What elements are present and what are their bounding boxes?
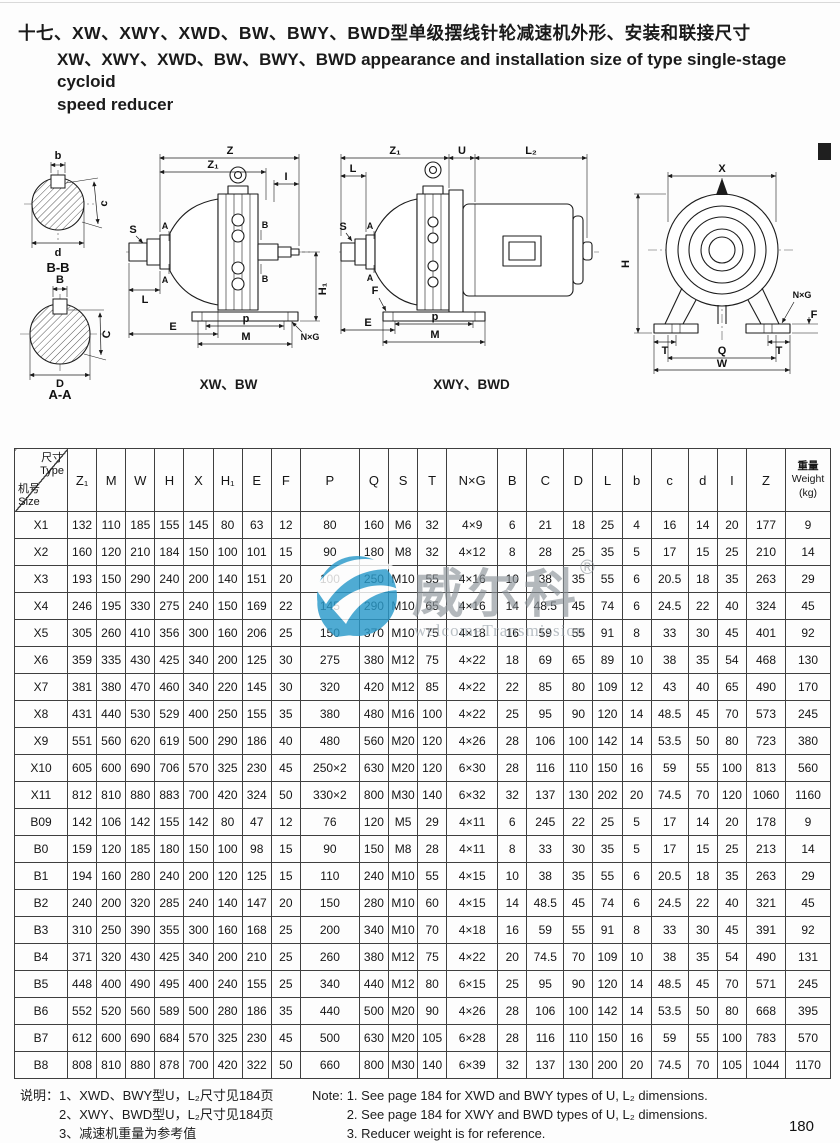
- dim-label-M: M: [430, 329, 439, 341]
- grease-fitting: [716, 178, 728, 195]
- dimension-value-cell: 22: [271, 593, 300, 620]
- dimension-value-cell: 110: [300, 863, 359, 890]
- dimension-value-cell: 32: [498, 782, 527, 809]
- dimension-value-cell: 880: [126, 1052, 155, 1079]
- dimension-value-cell: 54: [717, 647, 746, 674]
- dimension-value-cell: 690: [126, 755, 155, 782]
- dimension-value-cell: 38: [651, 944, 688, 971]
- dimension-value-cell: 100: [213, 539, 242, 566]
- dimension-value-cell: 25: [717, 539, 746, 566]
- dimension-value-cell: 45: [688, 701, 717, 728]
- dimension-value-cell: 120: [213, 863, 242, 890]
- dimension-value-cell: 150: [359, 836, 388, 863]
- column-header: N×G: [447, 449, 498, 512]
- dimension-value-cell: 359: [68, 647, 97, 674]
- dimension-value-cell: 59: [527, 917, 564, 944]
- dimension-value-cell: 880: [126, 782, 155, 809]
- dimension-value-cell: 178: [747, 809, 786, 836]
- technical-drawings: b c d B-B: [0, 142, 840, 444]
- dimension-value-cell: 230: [242, 755, 271, 782]
- row-type-cell: B3: [15, 917, 68, 944]
- xwy-bwd-view: Z₁ U L₂ L A A S F E: [339, 142, 604, 393]
- dimension-value-cell: 391: [747, 917, 786, 944]
- dimension-value-cell: 25: [717, 836, 746, 863]
- dimension-value-cell: 90: [418, 998, 447, 1025]
- dimension-value-cell: 69: [527, 647, 564, 674]
- dimension-value-cell: 43: [651, 674, 688, 701]
- dimension-value-cell: M12: [388, 647, 417, 674]
- row-type-cell: B6: [15, 998, 68, 1025]
- table-row: X635933543042534020012530275380M12754×22…: [15, 647, 831, 674]
- dimension-value-cell: M16: [388, 701, 417, 728]
- dimension-value-cell: 14: [498, 593, 527, 620]
- dimension-value-cell: 140: [213, 890, 242, 917]
- dimension-value-cell: 28: [498, 728, 527, 755]
- dimension-value-cell: 120: [717, 782, 746, 809]
- dimension-value-cell: 177: [747, 512, 786, 539]
- dimension-value-cell: 75: [418, 647, 447, 674]
- page-title-zh: 十七、XW、XWY、XWD、BW、BWY、BWD型单级摆线针轮减速机外形、安装和…: [18, 20, 826, 45]
- dimension-value-cell: 245: [786, 701, 831, 728]
- dimension-value-cell: 200: [213, 647, 242, 674]
- dimension-value-cell: 4×15: [447, 863, 498, 890]
- table-row: B0159120185180150100981590150M8284×11833…: [15, 836, 831, 863]
- dimension-value-cell: 440: [359, 971, 388, 998]
- dimension-value-cell: 140: [418, 1052, 447, 1079]
- dimension-value-cell: 330×2: [300, 782, 359, 809]
- table-row: B0914210614215514280471276120M5294×11624…: [15, 809, 831, 836]
- dimension-value-cell: 420: [359, 674, 388, 701]
- dim-label-T: T: [662, 345, 669, 357]
- dimension-value-cell: 263: [747, 566, 786, 593]
- dimension-value-cell: 200: [213, 944, 242, 971]
- dimension-value-cell: 500: [300, 1025, 359, 1052]
- dimension-value-cell: 14: [622, 701, 651, 728]
- dimension-value-cell: 20: [717, 512, 746, 539]
- dimension-value-cell: 53.5: [651, 998, 688, 1025]
- dimension-value-cell: 14: [688, 809, 717, 836]
- dimension-value-cell: 70: [688, 1052, 717, 1079]
- dimension-value-cell: M12: [388, 674, 417, 701]
- dimension-value-cell: 35: [717, 566, 746, 593]
- table-row: B331025039035530016016825200340M10704×18…: [15, 917, 831, 944]
- dimension-value-cell: 570: [184, 1025, 213, 1052]
- xwy-bwd-drawing: Z₁ U L₂ L A A S F E: [339, 142, 604, 357]
- dimension-value-cell: 76: [300, 809, 359, 836]
- dimension-value-cell: 9: [786, 809, 831, 836]
- dimension-value-cell: 12: [622, 674, 651, 701]
- dimension-value-cell: 29: [418, 809, 447, 836]
- dimension-value-cell: 55: [688, 1025, 717, 1052]
- table-row: B761260069068457032523045500630M201056×2…: [15, 1025, 831, 1052]
- dimension-value-cell: 95: [527, 701, 564, 728]
- dimension-value-cell: 35: [564, 863, 593, 890]
- dimension-value-cell: 45: [271, 755, 300, 782]
- dimension-value-cell: 14: [622, 728, 651, 755]
- dimension-value-cell: 17: [651, 539, 688, 566]
- dimension-value-cell: 35: [717, 863, 746, 890]
- dim-label-E: E: [169, 321, 176, 333]
- dimension-value-cell: 320: [126, 890, 155, 917]
- dimension-value-cell: 150: [300, 620, 359, 647]
- dimension-value-cell: 145: [184, 512, 213, 539]
- dim-label-H: H: [620, 260, 632, 268]
- dimension-value-cell: 120: [97, 539, 126, 566]
- notes-zh-label: 说明：: [20, 1087, 59, 1143]
- dim-label-C: C: [100, 330, 113, 340]
- page-edge-line: [0, 2, 840, 3]
- dimension-value-cell: 70: [418, 917, 447, 944]
- dimension-value-cell: 246: [68, 593, 97, 620]
- dimension-value-cell: 54: [717, 944, 746, 971]
- dimension-value-cell: 260: [97, 620, 126, 647]
- dimension-value-cell: 480: [300, 728, 359, 755]
- dimension-value-cell: 85: [527, 674, 564, 701]
- dimension-value-cell: 240: [213, 971, 242, 998]
- dimension-value-cell: 30: [271, 674, 300, 701]
- dimension-value-cell: 4×22: [447, 674, 498, 701]
- dimension-value-cell: 120: [593, 971, 622, 998]
- dimension-value-cell: 250: [359, 566, 388, 593]
- dimension-value-cell: 15: [688, 539, 717, 566]
- dimension-value-cell: 448: [68, 971, 97, 998]
- dimension-value-cell: 142: [184, 809, 213, 836]
- column-header: P: [300, 449, 359, 512]
- dimension-value-cell: 25: [593, 512, 622, 539]
- dimension-value-cell: 60: [418, 890, 447, 917]
- dimension-value-cell: 380: [786, 728, 831, 755]
- column-header: b: [622, 449, 651, 512]
- dimension-value-cell: 280: [213, 998, 242, 1025]
- dimension-value-cell: M30: [388, 782, 417, 809]
- dimension-value-cell: 783: [747, 1025, 786, 1052]
- dim-label-T: T: [776, 345, 783, 357]
- dimension-value-cell: 15: [271, 836, 300, 863]
- dimension-value-cell: 55: [593, 863, 622, 890]
- dimension-value-cell: 35: [688, 647, 717, 674]
- dimension-value-cell: 250: [213, 701, 242, 728]
- dimension-value-cell: 50: [688, 728, 717, 755]
- dimension-value-cell: 30: [271, 647, 300, 674]
- dim-label-L: L: [350, 163, 357, 175]
- dimension-value-cell: 206: [242, 620, 271, 647]
- dimension-value-cell: M12: [388, 971, 417, 998]
- dimension-value-cell: 140: [418, 782, 447, 809]
- column-header: T: [418, 449, 447, 512]
- dimension-value-cell: 570: [786, 1025, 831, 1052]
- dimension-value-cell: 589: [155, 998, 184, 1025]
- dimension-value-cell: 200: [184, 566, 213, 593]
- dimension-value-cell: 120: [418, 755, 447, 782]
- dimension-value-cell: 142: [126, 809, 155, 836]
- dimension-value-cell: 50: [688, 998, 717, 1025]
- dim-label-L: L: [142, 294, 149, 306]
- front-view-drawing: X H N×G F T T: [620, 154, 825, 382]
- dimension-value-cell: 605: [68, 755, 97, 782]
- dimension-value-cell: 59: [651, 755, 688, 782]
- corner-bottom-zh: 机号: [18, 483, 40, 495]
- dimension-value-cell: 600: [97, 755, 126, 782]
- dimension-value-cell: 65: [564, 647, 593, 674]
- dimension-value-cell: M10: [388, 566, 417, 593]
- row-type-cell: B7: [15, 1025, 68, 1052]
- dimension-value-cell: 150: [184, 539, 213, 566]
- dim-label-L2: L₂: [525, 145, 537, 157]
- column-header: S: [388, 449, 417, 512]
- dimension-value-cell: 275: [300, 647, 359, 674]
- dimension-value-cell: 55: [564, 917, 593, 944]
- dim-label-F: F: [811, 309, 818, 321]
- column-header: c: [651, 449, 688, 512]
- dimension-value-cell: 5: [622, 809, 651, 836]
- dimension-value-cell: 38: [527, 863, 564, 890]
- dimension-value-cell: 260: [300, 944, 359, 971]
- dim-label-Q: Q: [718, 345, 727, 357]
- dimension-value-cell: 32: [418, 512, 447, 539]
- section-mark-A: A: [367, 221, 374, 231]
- dimension-value-cell: 551: [68, 728, 97, 755]
- dimension-value-cell: 25: [271, 944, 300, 971]
- table-row: X113211018515514580631280160M6324×962118…: [15, 512, 831, 539]
- dimension-value-cell: 55: [564, 620, 593, 647]
- dimension-value-cell: 250: [97, 917, 126, 944]
- page-number: 180: [789, 1118, 814, 1135]
- dimension-value-cell: 530: [126, 701, 155, 728]
- dimension-value-cell: 460: [155, 674, 184, 701]
- dimension-value-cell: 32: [498, 1052, 527, 1079]
- dimension-value-cell: 45: [786, 593, 831, 620]
- dimension-value-cell: 210: [242, 944, 271, 971]
- dimension-value-cell: 100: [300, 566, 359, 593]
- dimension-value-cell: 6×30: [447, 755, 498, 782]
- page-title-en-line2: speed reducer: [57, 94, 826, 116]
- dimension-value-cell: 400: [97, 971, 126, 998]
- dimension-value-cell: 4×18: [447, 620, 498, 647]
- column-header: D: [564, 449, 593, 512]
- dimension-value-cell: M8: [388, 539, 417, 566]
- dimension-value-cell: 380: [300, 701, 359, 728]
- dimension-value-cell: 45: [271, 1025, 300, 1052]
- dimension-value-cell: 12: [271, 809, 300, 836]
- dimension-value-cell: 325: [213, 755, 242, 782]
- dimension-value-cell: 147: [242, 890, 271, 917]
- dim-label-X: X: [718, 163, 726, 175]
- dimension-value-cell: 45: [786, 890, 831, 917]
- dimension-value-cell: 22: [564, 809, 593, 836]
- section-aa-caption: A-A: [48, 387, 72, 400]
- dimension-value-cell: 20: [622, 782, 651, 809]
- dimension-value-cell: 4×26: [447, 998, 498, 1025]
- dimension-value-cell: 4: [622, 512, 651, 539]
- column-header: X: [184, 449, 213, 512]
- section-mark-A: A: [162, 275, 169, 285]
- table-row: X843144053052940025015535380480M161004×2…: [15, 701, 831, 728]
- table-row: B119416028024020012012515110240M10554×15…: [15, 863, 831, 890]
- dimension-value-cell: 100: [717, 1025, 746, 1052]
- dimension-value-cell: 495: [155, 971, 184, 998]
- dimension-value-cell: 29: [786, 863, 831, 890]
- dim-label-F: F: [372, 285, 379, 297]
- dimension-value-cell: 320: [97, 944, 126, 971]
- corner-top-en: Type: [40, 465, 64, 477]
- row-type-cell: X8: [15, 701, 68, 728]
- column-header: Z: [747, 449, 786, 512]
- dimension-value-cell: 75: [418, 944, 447, 971]
- column-header: C: [527, 449, 564, 512]
- dimension-value-cell: 21: [527, 512, 564, 539]
- dimension-value-cell: 28: [418, 836, 447, 863]
- row-type-cell: X4: [15, 593, 68, 620]
- dimension-value-cell: 110: [97, 512, 126, 539]
- note-item: 3. Reducer weight is for reference.: [347, 1125, 708, 1143]
- dimension-value-cell: M20: [388, 998, 417, 1025]
- dimension-value-cell: 470: [126, 674, 155, 701]
- dimension-value-cell: 4×18: [447, 917, 498, 944]
- dimension-value-cell: 40: [271, 728, 300, 755]
- dimension-value-cell: 29: [786, 566, 831, 593]
- dimension-value-cell: 808: [68, 1052, 97, 1079]
- dimension-value-cell: 63: [242, 512, 271, 539]
- weight-label-en: Weight: [786, 473, 830, 487]
- dimension-value-cell: 74.5: [527, 944, 564, 971]
- dimension-value-cell: 16: [622, 755, 651, 782]
- dimension-value-cell: 116: [527, 1025, 564, 1052]
- dimension-value-cell: 210: [747, 539, 786, 566]
- dimension-value-cell: 160: [68, 539, 97, 566]
- dimension-value-cell: 15: [271, 863, 300, 890]
- dimension-value-cell: 98: [242, 836, 271, 863]
- dimension-value-cell: 560: [126, 998, 155, 1025]
- dimension-value-cell: 16: [498, 917, 527, 944]
- section-bb-caption: B-B: [46, 260, 69, 275]
- dimension-value-cell: 35: [593, 539, 622, 566]
- dimension-value-cell: 184: [155, 539, 184, 566]
- dimension-value-cell: M20: [388, 728, 417, 755]
- dimension-value-cell: 130: [564, 782, 593, 809]
- dimension-value-cell: 125: [242, 647, 271, 674]
- dimension-value-cell: 186: [242, 998, 271, 1025]
- dimension-value-cell: 290: [359, 593, 388, 620]
- column-header: E: [242, 449, 271, 512]
- dimension-value-cell: 100: [418, 701, 447, 728]
- dimension-value-cell: 480: [359, 701, 388, 728]
- dimension-value-cell: 193: [68, 566, 97, 593]
- table-row: X424619533027524015016922145290M10654×16…: [15, 593, 831, 620]
- row-type-cell: X3: [15, 566, 68, 593]
- row-type-cell: B09: [15, 809, 68, 836]
- dimension-value-cell: 20.5: [651, 566, 688, 593]
- dimension-value-cell: 1044: [747, 1052, 786, 1079]
- column-header: L: [593, 449, 622, 512]
- dimension-value-cell: 425: [155, 647, 184, 674]
- dimension-value-cell: 186: [242, 728, 271, 755]
- dimension-value-cell: 25: [271, 917, 300, 944]
- dimension-value-cell: 109: [593, 944, 622, 971]
- dimension-value-cell: 324: [747, 593, 786, 620]
- dimension-value-cell: 160: [213, 917, 242, 944]
- note-item: 2. See page 184 for XWY and BWD types of…: [347, 1106, 708, 1125]
- dimension-value-cell: 324: [242, 782, 271, 809]
- dimension-value-cell: 20: [498, 944, 527, 971]
- dimension-value-cell: 28: [498, 998, 527, 1025]
- dimension-value-cell: 5: [622, 836, 651, 863]
- dimension-value-cell: 570: [184, 755, 213, 782]
- section-mark-A: A: [162, 221, 169, 231]
- dimension-value-cell: 440: [97, 701, 126, 728]
- column-header: d: [688, 449, 717, 512]
- dimension-value-cell: 110: [564, 1025, 593, 1052]
- column-header: M: [97, 449, 126, 512]
- note-item: 2、XWY、BWD型U，L₂尺寸见184页: [59, 1106, 274, 1125]
- dimension-value-cell: 440: [300, 998, 359, 1025]
- dimension-value-cell: 24.5: [651, 593, 688, 620]
- dimension-value-cell: 116: [527, 755, 564, 782]
- dimension-value-cell: 18: [564, 512, 593, 539]
- dimension-value-cell: 59: [527, 620, 564, 647]
- dimension-value-cell: 263: [747, 863, 786, 890]
- dimension-value-cell: 132: [68, 512, 97, 539]
- dimension-value-cell: 8: [622, 917, 651, 944]
- dimension-value-cell: 4×9: [447, 512, 498, 539]
- dimension-table-section: 尺寸Type 机号Size Z₁MWHXH₁EFPQSTN×GBCDLbcdIZ…: [14, 448, 831, 1079]
- column-header: W: [126, 449, 155, 512]
- dimension-value-cell: 155: [155, 809, 184, 836]
- dimension-value-cell: 48.5: [651, 701, 688, 728]
- dimension-value-cell: 285: [155, 890, 184, 917]
- dimension-value-cell: 38: [527, 566, 564, 593]
- dimension-value-cell: 35: [564, 566, 593, 593]
- dimension-value-cell: 340: [184, 647, 213, 674]
- dimension-value-cell: 150: [213, 593, 242, 620]
- dimension-value-cell: 38: [651, 647, 688, 674]
- dimension-value-cell: 28: [498, 1025, 527, 1052]
- note-item: 1、XWD、BWY型U，L₂尺寸见184页: [59, 1087, 274, 1106]
- note-item: 1. See page 184 for XWD and BWY types of…: [347, 1087, 708, 1106]
- dimension-value-cell: 55: [688, 755, 717, 782]
- dimension-value-cell: 6: [498, 809, 527, 836]
- dimension-value-cell: 6×15: [447, 971, 498, 998]
- dimension-value-cell: 6×39: [447, 1052, 498, 1079]
- dimension-value-cell: 573: [747, 701, 786, 728]
- row-type-cell: X2: [15, 539, 68, 566]
- dimension-value-cell: M6: [388, 512, 417, 539]
- dimension-value-cell: 169: [242, 593, 271, 620]
- dimension-value-cell: 25: [498, 701, 527, 728]
- dimension-value-cell: 106: [527, 998, 564, 1025]
- dimension-value-cell: 160: [359, 512, 388, 539]
- dimension-value-cell: 159: [68, 836, 97, 863]
- dimension-value-cell: 120: [359, 809, 388, 836]
- dimension-value-cell: 145: [242, 674, 271, 701]
- dimension-value-cell: 490: [747, 944, 786, 971]
- dimension-value-cell: 240: [359, 863, 388, 890]
- dimension-value-cell: 6: [622, 593, 651, 620]
- dimension-value-cell: 105: [717, 1052, 746, 1079]
- dimension-value-cell: 92: [786, 917, 831, 944]
- notes-en-label: Note:: [312, 1087, 343, 1143]
- dimension-value-cell: 10: [498, 566, 527, 593]
- dimension-value-cell: 48.5: [651, 971, 688, 998]
- dimension-value-cell: 120: [593, 701, 622, 728]
- dimension-value-cell: 120: [418, 728, 447, 755]
- dimension-value-cell: 552: [68, 998, 97, 1025]
- dimension-value-cell: 356: [155, 620, 184, 647]
- dimension-value-cell: 160: [97, 863, 126, 890]
- dimension-value-cell: 200: [593, 1052, 622, 1079]
- section-view-bb: b c d B-B: [24, 150, 110, 275]
- dimension-value-cell: 80: [213, 512, 242, 539]
- dimension-value-cell: 45: [717, 620, 746, 647]
